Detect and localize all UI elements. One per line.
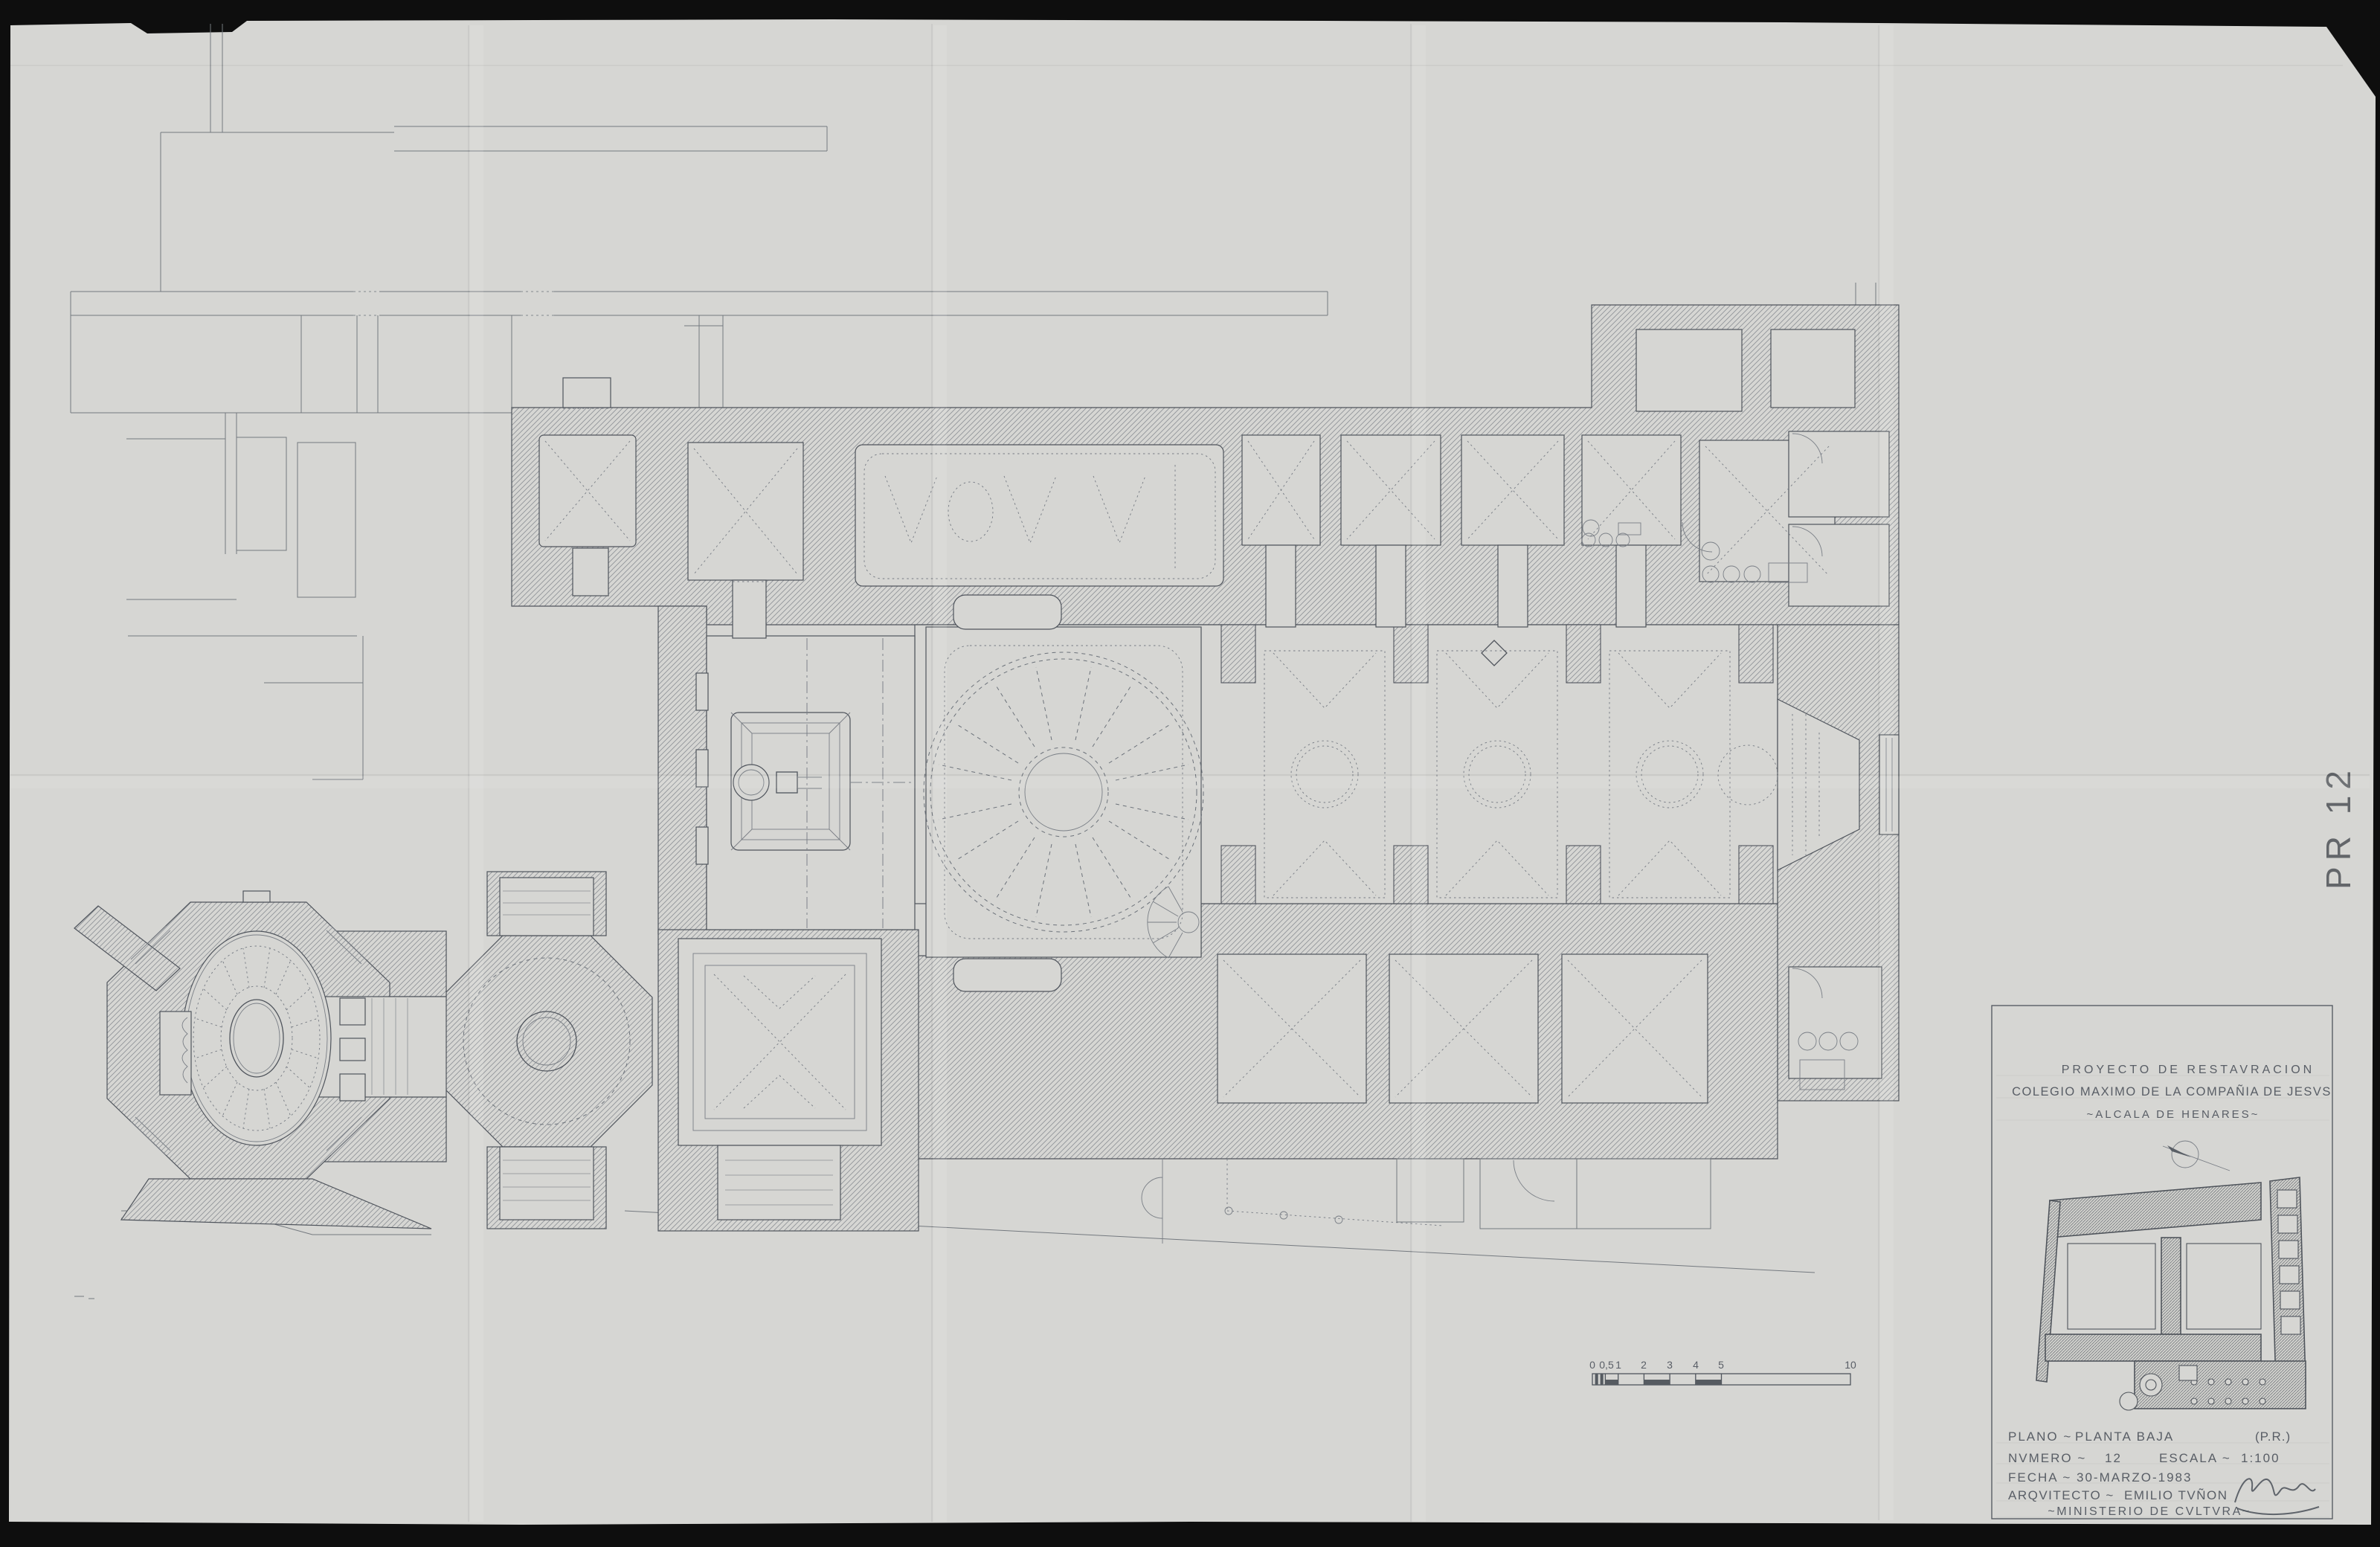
crossing-dome-bay: [926, 627, 1201, 957]
numero-value: 12: [2105, 1451, 2122, 1465]
fecha-value: 30-MARZO-1983: [2077, 1470, 2192, 1485]
ministerio-line: ~MINISTERIO DE CVLTVRA~: [2048, 1505, 2251, 1518]
scale-label-0: 0: [1589, 1359, 1595, 1371]
scale-label-10: 10: [1844, 1359, 1856, 1371]
scale-label-3: 3: [1667, 1359, 1673, 1371]
project-title-line2: COLEGIO MAXIMO DE LA COMPAÑIA DE JESVS: [2012, 1084, 2332, 1099]
choir-room: [855, 445, 1223, 586]
escala-label: ESCALA ~: [2159, 1451, 2231, 1465]
project-title-line3: ~ALCALA DE HENARES~: [2087, 1108, 2260, 1121]
project-title-line1: PROYECTO DE RESTAVRACION: [2062, 1064, 2315, 1076]
arquitecto-value: EMILIO TVÑON: [2124, 1488, 2228, 1502]
fecha-label: FECHA ~: [2008, 1470, 2071, 1485]
plano-label: PLANO ~: [2008, 1429, 2072, 1444]
scale-label-5: 5: [1718, 1359, 1724, 1371]
link-corridor: [312, 997, 446, 1101]
numero-label: NVMERO ~: [2008, 1451, 2086, 1465]
scanned-drawing-sheet: 0 0,5 1 2 3 4 5 10 PROYECTO DE RESTAVRAC…: [0, 0, 2380, 1547]
scale-label-4: 4: [1693, 1359, 1699, 1371]
scale-label-05: 0,5: [1599, 1359, 1614, 1371]
arquitecto-label: ARQVITECTO ~: [2008, 1488, 2114, 1502]
scale-label-2: 2: [1641, 1359, 1647, 1371]
plano-value: PLANTA BAJA: [2075, 1429, 2174, 1444]
scale-label-1: 1: [1615, 1359, 1621, 1371]
plano-reference: (P.R.): [2255, 1429, 2291, 1444]
floor-plan-sheet: 0 0,5 1 2 3 4 5 10 PROYECTO DE RESTAVRAC…: [0, 0, 2380, 1547]
escala-value: 1:100: [2241, 1451, 2280, 1465]
